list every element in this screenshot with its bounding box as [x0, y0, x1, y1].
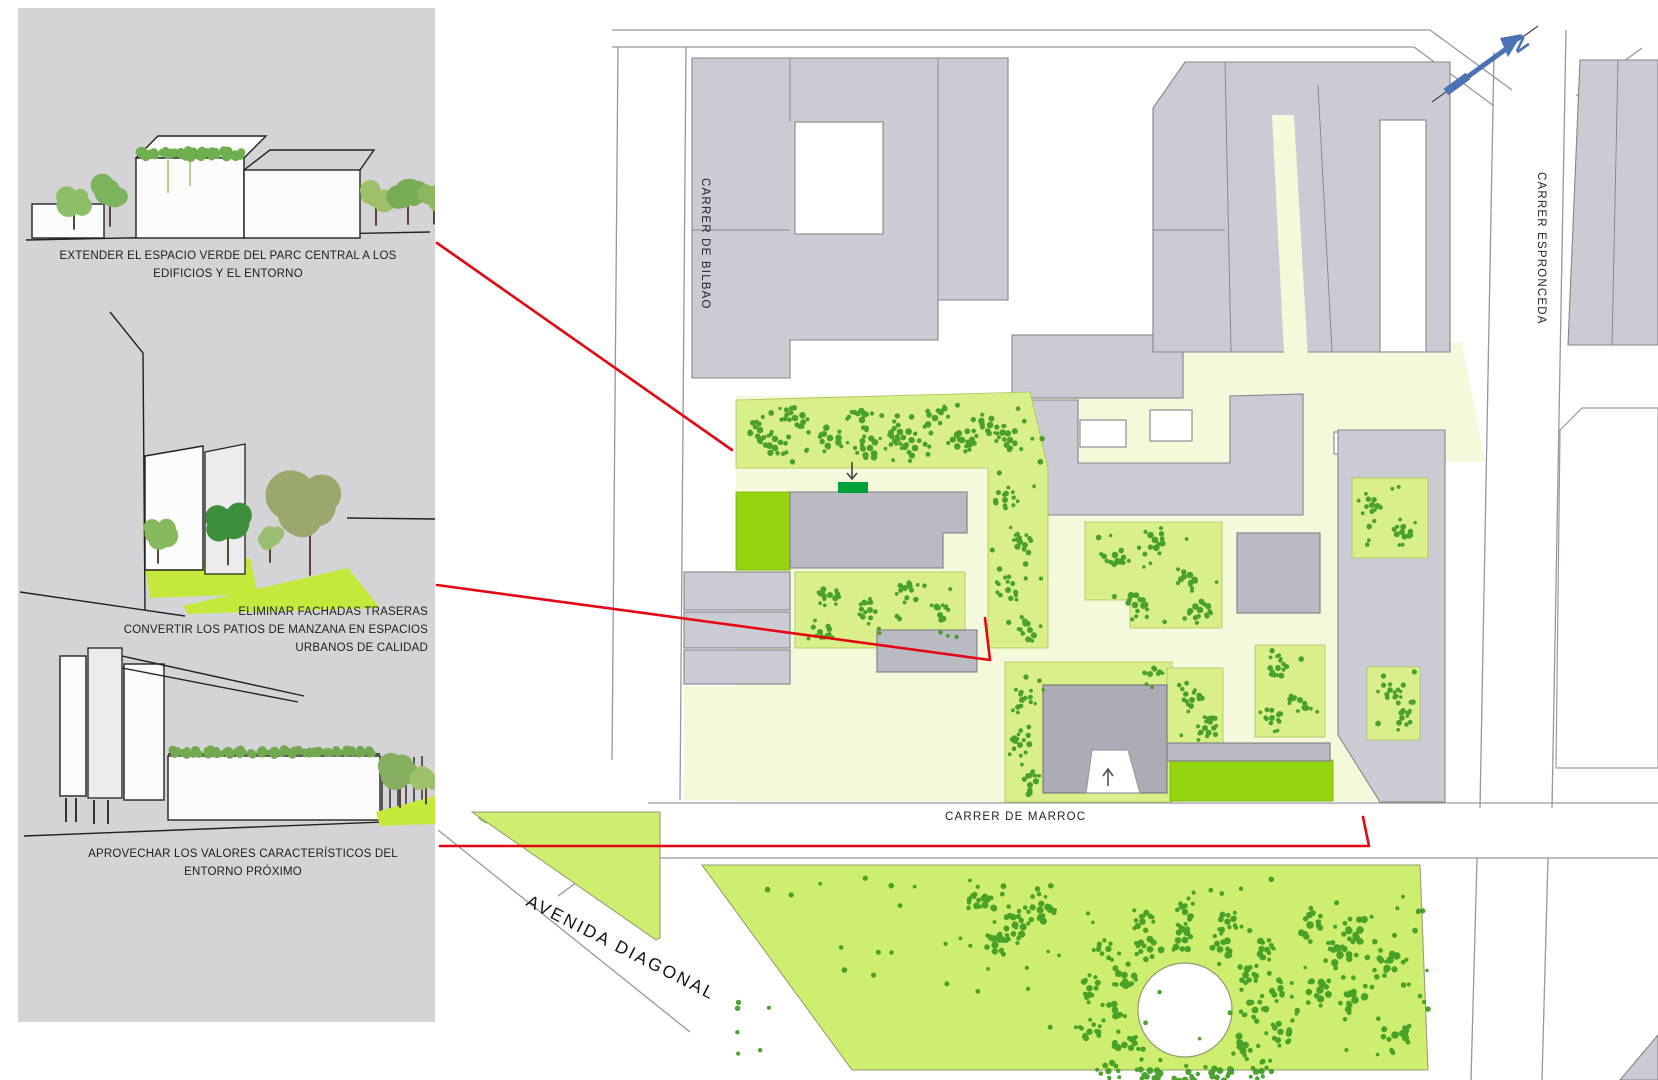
street-label-bilbao: CARRER DE BILBAO	[699, 178, 711, 310]
block-northwest	[692, 58, 1008, 378]
sketch-patios	[18, 290, 435, 620]
park-plaza-circle	[1138, 963, 1232, 1057]
block-northeast	[1153, 62, 1450, 394]
caption-patios-line2: CONVERTIR LOS PATIOS DE MANZANA EN ESPAC…	[73, 622, 428, 658]
diagonal-park	[702, 865, 1428, 1070]
garden-small-east	[1167, 668, 1223, 743]
bright-green-plot-west	[736, 492, 790, 570]
annotation-line-1	[437, 243, 732, 450]
blocks-far-east	[1556, 60, 1658, 1080]
caption-patios-line1: ELIMINAR FACHADAS TRASERAS	[73, 604, 428, 622]
caption-patios: ELIMINAR FACHADAS TRASERAS CONVERTIR LOS…	[73, 604, 428, 657]
sketch-extend-green	[18, 8, 435, 248]
garden-northeast	[1352, 478, 1428, 558]
building-strip	[1167, 743, 1330, 761]
street-label-espronceda: CARRER ESPRONCEDA	[1535, 172, 1547, 325]
concept-sketches-panel: EXTENDER EL ESPACIO VERDE DEL PARC CENTR…	[18, 8, 435, 1022]
caption-extend-green: EXTENDER EL ESPACIO VERDE DEL PARC CENTR…	[38, 248, 418, 284]
street-label-marroc: CARRER DE MARROC	[945, 811, 1086, 823]
caption-entorno: APROVECHAR LOS VALORES CARACTERÍSTICOS D…	[58, 846, 428, 882]
site-plan-page: CARRER DE BILBAO CARRER ESPRONCEDA CARRE…	[0, 0, 1658, 1080]
building-east	[1237, 533, 1320, 613]
garden-southeast	[1255, 645, 1325, 737]
bright-green-plot-south	[1170, 760, 1333, 801]
long-building	[790, 492, 967, 568]
